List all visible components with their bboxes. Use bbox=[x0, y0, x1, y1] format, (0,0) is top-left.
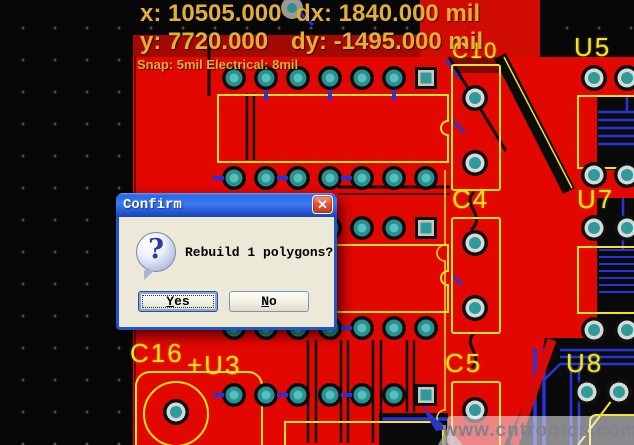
cursor-x-readout: x: 10505.000 bbox=[140, 2, 281, 26]
yes-button[interactable]: Yes bbox=[138, 291, 218, 312]
component-label-c16: C16 bbox=[130, 340, 184, 366]
dialog-titlebar[interactable]: Confirm ✕ bbox=[116, 193, 337, 217]
cursor-y-readout: y: 7720.000 bbox=[140, 30, 268, 54]
cursor-dy-readout: dy: -1495.000 mil bbox=[291, 30, 483, 54]
close-icon: ✕ bbox=[317, 197, 328, 212]
pcb-editor-window: C10 U5 C4 U7 C16 +U3 C5 U8 x: 10505.000 … bbox=[0, 0, 634, 445]
confirm-dialog: Confirm ✕ ? Rebuild 1 polygons? Yes No bbox=[116, 193, 337, 330]
watermark-text: www.cntronics.com bbox=[443, 420, 634, 442]
dialog-body: ? Rebuild 1 polygons? Yes No bbox=[119, 217, 334, 327]
watermark: www.cntronics.com bbox=[447, 416, 634, 445]
component-label-u5: U5 bbox=[574, 34, 611, 60]
component-label-c5: C5 bbox=[445, 350, 482, 376]
snap-grid-readout: Snap: 5mil Electrical: 8mil bbox=[137, 58, 298, 71]
close-button[interactable]: ✕ bbox=[312, 195, 333, 214]
component-label-u8: U8 bbox=[566, 350, 603, 376]
question-bubble-tail bbox=[144, 270, 155, 280]
dialog-title: Confirm bbox=[123, 197, 182, 213]
cursor-dx-readout: dx: 1840.000 mil bbox=[296, 2, 480, 26]
component-label-u3: +U3 bbox=[187, 352, 241, 378]
component-label-u7: U7 bbox=[577, 186, 614, 212]
question-icon: ? bbox=[136, 232, 176, 272]
question-glyph: ? bbox=[137, 234, 175, 265]
component-label-c4: C4 bbox=[452, 186, 489, 212]
no-button[interactable]: No bbox=[229, 291, 309, 312]
dialog-message: Rebuild 1 polygons? bbox=[185, 245, 333, 260]
